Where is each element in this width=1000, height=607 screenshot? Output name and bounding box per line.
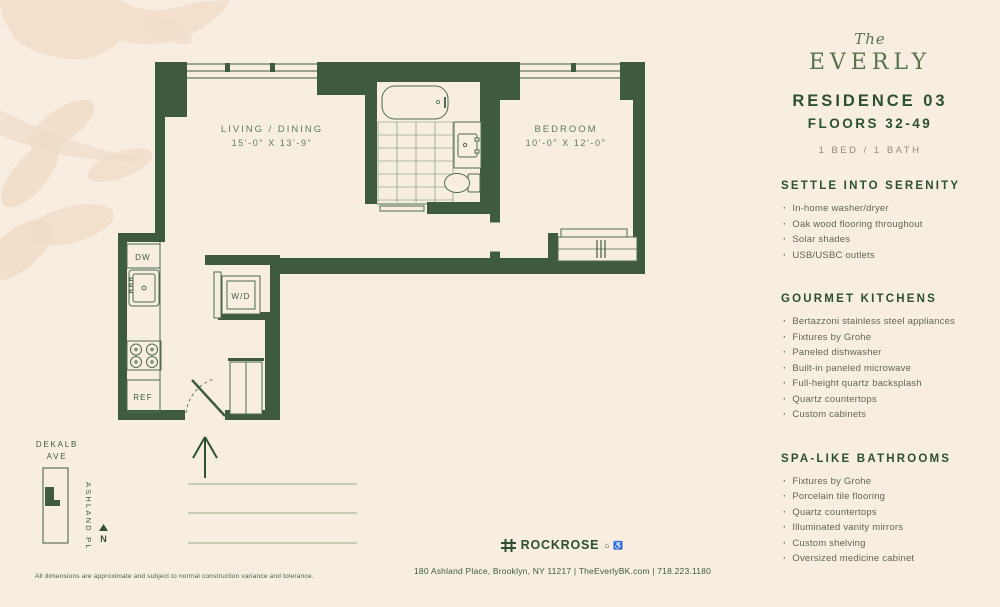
amenity-item: ·Oversized medicine cabinet (781, 551, 971, 567)
bullet-icon: · (783, 376, 786, 392)
amenity-section-title: GOURMET KITCHENS (781, 293, 971, 305)
amenity-item: ·Solar shades (781, 232, 971, 248)
stove (127, 341, 161, 370)
amenity-section-title: SETTLE INTO SERENITY (781, 180, 971, 192)
closet-door (214, 272, 221, 318)
living-dining-label: LIVING / DINING (221, 124, 323, 135)
bathroom-door-opening (377, 204, 427, 211)
amenity-item: ·Paneled dishwasher (781, 345, 971, 361)
amenity-item: ·Porcelain tile flooring (781, 489, 971, 505)
footer-center: ROCKROSE ⌂ ♿ 180 Ashland Place, Brooklyn… (405, 538, 720, 576)
amenity-list: ·Bertazzoni stainless steel appliances ·… (781, 314, 971, 423)
logo-name: EVERLY (760, 50, 980, 75)
amenity-item-label: Fixtures by Grohe (792, 474, 871, 490)
bullet-icon: · (783, 217, 786, 233)
amenity-item: ·Custom cabinets (781, 407, 971, 423)
address-line: 180 Ashland Place, Brooklyn, NY 11217 | … (405, 566, 720, 576)
amenity-item: ·Bertazzoni stainless steel appliances (781, 314, 971, 330)
closet-door-panel (230, 362, 246, 414)
bullet-icon: · (783, 392, 786, 408)
amenity-section-title: SPA-LIKE BATHROOMS (781, 453, 971, 465)
amenity-section-kitchens: GOURMET KITCHENS ·Bertazzoni stainless s… (781, 293, 971, 423)
bathtub (382, 86, 448, 119)
amenity-item-label: USB/USBC outlets (792, 248, 874, 264)
entry-arrow-icon (193, 437, 217, 478)
bullet-icon: · (783, 330, 786, 346)
amenity-item-label: Oversized medicine cabinet (792, 551, 914, 567)
everly-logo: The EVERLY (760, 30, 980, 75)
bullet-icon: · (783, 489, 786, 505)
amenity-item-label: Solar shades (792, 232, 850, 248)
laundry-closet: W/D (214, 272, 260, 318)
living-dining-dims: 15'-0" X 13'-9" (232, 138, 313, 148)
amenity-item-label: Custom shelving (792, 536, 865, 552)
refrigerator-label: REF (133, 393, 153, 402)
amenity-item-label: Fixtures by Grohe (792, 330, 871, 346)
ashland-pl-label: ASHLAND PL (84, 482, 93, 551)
amenity-item-label: Full-height quartz backsplash (792, 376, 921, 392)
amenity-item: ·Custom shelving (781, 536, 971, 552)
amenity-section-serenity: SETTLE INTO SERENITY ·In-home washer/dry… (781, 180, 971, 263)
amenity-item-label: Built-in paneled microwave (792, 361, 911, 377)
amenity-item: ·Quartz countertops (781, 505, 971, 521)
brochure-page: DW REF (0, 0, 1000, 607)
amenity-item: ·Quartz countertops (781, 392, 971, 408)
bedroom-label: BEDROOM (534, 124, 597, 135)
amenity-item-label: Illuminated vanity mirrors (792, 520, 903, 536)
amenity-section-bathrooms: SPA-LIKE BATHROOMS ·Fixtures by Grohe ·P… (781, 453, 971, 567)
amenity-item-label: In-home washer/dryer (792, 201, 888, 217)
dishwasher-label: DW (135, 253, 151, 262)
disclaimer-text: All dimensions are approximate and subje… (35, 573, 314, 580)
info-sidebar: The EVERLY RESIDENCE 03 FLOORS 32-49 1 B… (760, 0, 980, 607)
amenity-item: ·Full-height quartz backsplash (781, 376, 971, 392)
amenity-item: ·Built-in paneled microwave (781, 361, 971, 377)
bullet-icon: · (783, 345, 786, 361)
bullet-icon: · (783, 232, 786, 248)
dekalb-ave-label: DEKALB (36, 440, 78, 449)
kitchen: DW REF (127, 242, 161, 412)
bullet-icon: · (783, 314, 786, 330)
bullet-icon: · (783, 248, 786, 264)
vanity-sink (454, 122, 481, 168)
amenity-item-label: Quartz countertops (792, 392, 876, 408)
logo-the: The (760, 30, 980, 48)
bullet-icon: · (783, 407, 786, 423)
toilet (445, 174, 481, 193)
floorplan: DW REF (0, 0, 760, 607)
rockrose-mark-icon (501, 539, 516, 552)
amenity-item-label: Paneled dishwasher (792, 345, 881, 361)
amenity-item-label: Porcelain tile flooring (792, 489, 885, 505)
bathroom (378, 86, 481, 202)
tile-floor (378, 122, 453, 202)
amenity-item: ·Fixtures by Grohe (781, 330, 971, 346)
north-arrow-icon (99, 524, 108, 531)
amenity-item: ·In-home washer/dryer (781, 201, 971, 217)
amenity-item-label: Quartz countertops (792, 505, 876, 521)
amenity-item-label: Custom cabinets (792, 407, 866, 423)
residence-title: RESIDENCE 03 (760, 92, 980, 111)
amenity-item-label: Oak wood flooring throughout (792, 217, 922, 233)
amenity-item: ·Oak wood flooring throughout (781, 217, 971, 233)
washer-dryer-label: W/D (231, 292, 250, 301)
kitchen-sink (129, 270, 159, 306)
bullet-icon: · (783, 474, 786, 490)
closet-shelf (561, 229, 627, 237)
closet-door-panel (246, 362, 262, 414)
bullet-icon: · (783, 361, 786, 377)
amenity-item-label: Bertazzoni stainless steel appliances (792, 314, 955, 330)
amenity-list: ·In-home washer/dryer ·Oak wood flooring… (781, 201, 971, 263)
residence-floors: FLOORS 32-49 (760, 116, 980, 131)
location-map: DEKALB AVE ASHLAND PL N (36, 440, 108, 551)
rockrose-logo: ROCKROSE ⌂ ♿ (405, 538, 720, 552)
bullet-icon: · (783, 520, 786, 536)
amenity-item: ·USB/USBC outlets (781, 248, 971, 264)
dekalb-ave-label2: AVE (47, 452, 68, 461)
bullet-icon: · (783, 551, 786, 567)
north-label: N (100, 534, 107, 544)
amenity-item: ·Fixtures by Grohe (781, 474, 971, 490)
door-swing-arc (186, 379, 214, 413)
rockrose-name: ROCKROSE (521, 538, 600, 552)
bedroom-dims: 10'-0" X 12'-0" (526, 138, 607, 148)
equal-housing-accessibility-icons: ⌂ ♿ (604, 541, 624, 550)
amenity-list: ·Fixtures by Grohe ·Porcelain tile floor… (781, 474, 971, 567)
bullet-icon: · (783, 201, 786, 217)
amenity-item: ·Illuminated vanity mirrors (781, 520, 971, 536)
amenity-sections: SETTLE INTO SERENITY ·In-home washer/dry… (781, 180, 971, 567)
ruled-lines (188, 484, 357, 543)
building-footprint (45, 487, 60, 506)
bedroom-door-opening (490, 222, 500, 252)
entry-door-leaf (192, 380, 225, 416)
closet-track (228, 358, 264, 361)
residence-config: 1 BED / 1 BATH (760, 145, 980, 156)
bullet-icon: · (783, 505, 786, 521)
bedroom-closet (558, 229, 637, 261)
bullet-icon: · (783, 536, 786, 552)
entry (186, 358, 264, 416)
